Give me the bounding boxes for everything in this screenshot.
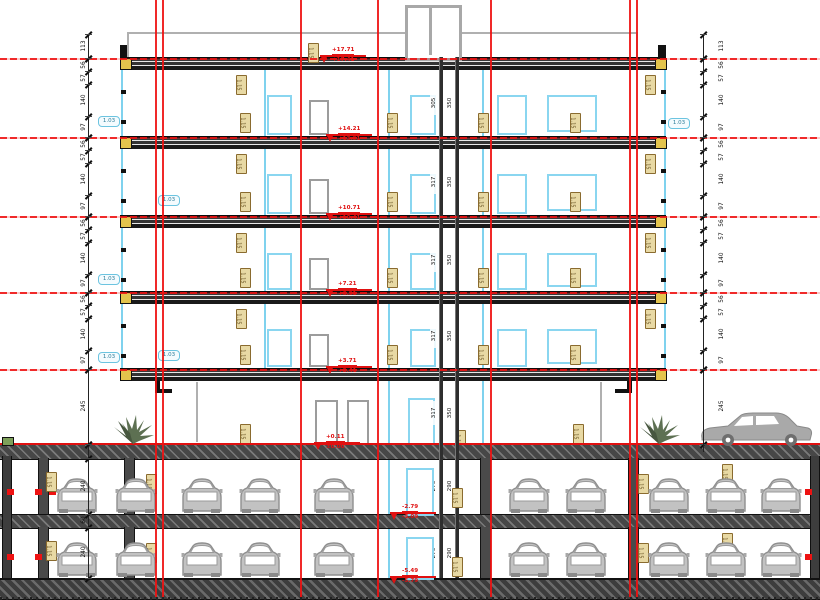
- level-marker-value-lower: +6.91: [338, 291, 357, 297]
- core-dim-a: 317: [430, 170, 438, 194]
- parked-car-b2: [757, 542, 805, 577]
- wall-dot: [121, 90, 126, 94]
- dim-value: 245: [718, 393, 726, 419]
- grid-line-horizontal-2: [0, 216, 820, 218]
- parked-car-glyph: [53, 542, 101, 577]
- dim-tick-bar: [700, 137, 707, 138]
- door-frame-left: [267, 95, 292, 135]
- wall-dot: [661, 354, 666, 358]
- level-marker-arrow: [326, 213, 334, 221]
- parked-car-b2: [310, 542, 358, 577]
- wall-tag: 1.15: [478, 192, 489, 212]
- level-marker-value-upper: -2.79: [402, 504, 418, 512]
- wall-tag-label: 1.15: [236, 313, 242, 324]
- wall-tag-label: 1.15: [570, 117, 576, 128]
- dim-value: 245: [80, 393, 88, 419]
- wall-tag-label: 1.15: [240, 117, 246, 128]
- dim-tick-bar: [700, 318, 707, 319]
- parked-car-glyph: [53, 478, 101, 513]
- level-marker-arrow: [390, 576, 398, 584]
- street-car-glyph: [698, 407, 814, 447]
- slab-end-block: [655, 369, 667, 381]
- level-marker-value-upper: +3.71: [338, 358, 357, 366]
- wall-tag: 1.15: [452, 488, 463, 508]
- wall-tag: 1.15: [570, 345, 581, 365]
- core-dim-b: 350: [446, 170, 454, 194]
- parked-car-b2: [53, 542, 101, 577]
- level-marker-value-lower: ±0.00: [326, 444, 345, 450]
- core-dim-a: 317: [430, 401, 438, 425]
- dim-tick-bar: [85, 458, 92, 459]
- door-outline: [309, 334, 329, 367]
- parked-car-b1: [112, 478, 160, 513]
- level-marker-value-lower: -3.09: [402, 514, 418, 520]
- parked-car-glyph: [562, 542, 610, 577]
- roof-parapet: [658, 45, 666, 58]
- dim-tick-bar: [700, 116, 707, 117]
- window-tag: 1.03: [98, 352, 120, 363]
- wall-tag: 1.15: [645, 233, 656, 253]
- slab-end-block: [655, 137, 667, 149]
- street-car: [698, 407, 814, 447]
- grid-line-vertical-1: [162, 0, 164, 597]
- slab-end-block: [655, 58, 667, 70]
- wall-tag: 1.15: [478, 113, 489, 133]
- wall-tag-label: 1.15: [46, 476, 52, 487]
- parked-car-glyph: [310, 542, 358, 577]
- core-wall-line: [439, 57, 443, 578]
- parked-car-b2: [178, 542, 226, 577]
- wall-tag: 1.15: [240, 192, 251, 212]
- dim-tick-bar: [700, 163, 707, 164]
- level-marker-arrow: [390, 512, 398, 520]
- wall-dot: [121, 278, 126, 282]
- wall-dot: [121, 248, 126, 252]
- wall-tag: 1.15: [570, 268, 581, 288]
- dim-value: 140: [80, 321, 88, 347]
- anchor-dot: [805, 489, 812, 495]
- wall-dot: [661, 90, 666, 94]
- wall-tag: 1.15: [387, 113, 398, 133]
- window-frame-mid: [497, 329, 527, 367]
- parked-car-b2: [562, 542, 610, 577]
- wall-tag-label: 1.15: [240, 428, 246, 439]
- parked-car-glyph: [702, 542, 750, 577]
- parked-car-b1: [702, 478, 750, 513]
- dim-value: 140: [80, 245, 88, 271]
- parked-car-glyph: [236, 478, 284, 513]
- dim-tick-bar: [700, 216, 707, 217]
- dim-tick-bar: [700, 305, 707, 306]
- parked-car-b1: [562, 478, 610, 513]
- wall-tag-label: 1.15: [645, 79, 651, 90]
- window-frame-mid: [497, 95, 527, 135]
- parked-car-b2: [236, 542, 284, 577]
- parked-car-b2: [702, 542, 750, 577]
- roof-parapet-line: [127, 32, 129, 57]
- wall-tag-label: 1.15: [645, 237, 651, 248]
- wall-tag-label: 1.15: [240, 272, 246, 283]
- parked-car-glyph: [757, 542, 805, 577]
- level-marker-arrow: [314, 442, 322, 450]
- door-outline: [309, 100, 329, 135]
- door-frame-left: [267, 329, 292, 367]
- wall-tag-label: 1.15: [387, 117, 393, 128]
- dim-value: 97: [718, 347, 726, 373]
- anchor-dot: [7, 489, 14, 495]
- core-dim-a: 317: [430, 324, 438, 348]
- planter-left: [112, 415, 154, 444]
- wall-tag: 1.15: [573, 424, 584, 444]
- parked-car-glyph: [645, 542, 693, 577]
- slab-end-block: [120, 369, 132, 381]
- curb-block: [2, 437, 14, 446]
- wall-tag-label: 1.15: [638, 478, 644, 489]
- wall-tag: 1.15: [645, 75, 656, 95]
- dim-tick-bar: [700, 229, 707, 230]
- level-marker-value-upper: +10.71: [338, 205, 360, 213]
- wall-tag: 1.15: [236, 154, 247, 174]
- parked-car-glyph: [178, 478, 226, 513]
- anchor-dot: [35, 554, 42, 560]
- wall-tag: 1.15: [387, 192, 398, 212]
- parked-car-glyph: [310, 478, 358, 513]
- dim-tick-bar: [700, 242, 707, 243]
- wall-tag: 1.15: [452, 557, 463, 577]
- ground-wall-line: [600, 382, 602, 442]
- window-frame-mid: [497, 174, 527, 214]
- dim-chain-parking: [88, 444, 89, 578]
- parked-car-glyph: [112, 478, 160, 513]
- window-tag: 1.03: [98, 116, 120, 127]
- dim-tick-bar: [700, 150, 707, 151]
- level-marker-arrow: [326, 289, 334, 297]
- wall-dot: [121, 120, 126, 124]
- slab-end-block: [120, 137, 132, 149]
- wall-dot: [661, 199, 666, 203]
- door-outline: [309, 258, 329, 290]
- grid-line-horizontal-1: [0, 137, 820, 139]
- wall-tag: 1.15: [240, 268, 251, 288]
- penthouse-door-outline: [405, 5, 462, 61]
- core-dim-b: 350: [446, 401, 454, 425]
- grid-line-vertical-0: [155, 0, 157, 597]
- slab-end-block: [655, 216, 667, 228]
- parked-car-glyph: [505, 542, 553, 577]
- wall-dot: [121, 169, 126, 173]
- dim-tick-bar: [700, 58, 707, 59]
- wall-tag-label: 1.15: [236, 79, 242, 90]
- dim-value: 140: [718, 321, 726, 347]
- dim-chain-right: [703, 34, 704, 444]
- level-marker-value-upper: -5.49: [402, 568, 418, 576]
- planter-right: [638, 415, 680, 444]
- dim-chain-left: [88, 34, 89, 444]
- level-marker-value-lower: -5.79: [402, 578, 418, 584]
- ground-door-outline: [347, 400, 369, 446]
- parked-car-glyph: [645, 478, 693, 513]
- wall-tag: 1.15: [240, 345, 251, 365]
- level-marker-arrow: [326, 366, 334, 374]
- anchor-dot: [35, 489, 42, 495]
- wall-tag-label: 1.15: [645, 313, 651, 324]
- level-marker-arrow: [320, 55, 328, 63]
- wall-tag-label: 1.15: [570, 196, 576, 207]
- wall-tag-label: 1.15: [387, 349, 393, 360]
- dim-value: 240: [80, 539, 88, 565]
- dim-value: 240: [80, 473, 88, 499]
- wall-tag: 1.15: [236, 75, 247, 95]
- door-outline: [309, 179, 329, 214]
- dim-tick-bar: [700, 274, 707, 275]
- parked-car-glyph: [562, 478, 610, 513]
- wall-tag: 1.15: [236, 309, 247, 329]
- parked-car-b1: [505, 478, 553, 513]
- level-marker-value-upper: +0.11: [326, 434, 345, 442]
- wall-dot: [121, 199, 126, 203]
- wall-dot: [121, 354, 126, 358]
- plant-glyph: [112, 415, 154, 444]
- wall-tag: 1.15: [308, 43, 319, 63]
- dim-tick-bar: [700, 195, 707, 196]
- penthouse-door-divider: [429, 8, 432, 55]
- wall-tag-label: 1.15: [46, 545, 52, 556]
- core-dim-b: 350: [446, 324, 454, 348]
- grid-line-horizontal-3: [0, 292, 820, 294]
- wall-tag: 1.15: [387, 268, 398, 288]
- wall-tag-label: 1.15: [570, 272, 576, 283]
- wall-tag-label: 1.15: [236, 158, 242, 169]
- dim-tick-bar: [85, 444, 92, 445]
- dim-tick-bar: [85, 578, 92, 579]
- wall-dot: [661, 169, 666, 173]
- grid-line-vertical-4: [490, 0, 492, 597]
- wall-tag-label: 1.15: [240, 349, 246, 360]
- parked-car-b1: [178, 478, 226, 513]
- wall-tag: 1.15: [645, 154, 656, 174]
- window-frame-mid: [497, 253, 527, 290]
- wall-tag-label: 1.15: [570, 349, 576, 360]
- wall-tag: 1.15: [240, 424, 251, 444]
- wall-tag-label: 1.15: [478, 272, 484, 283]
- level-marker-value-upper: +14.21: [338, 126, 360, 134]
- window-tag: 1.03: [668, 118, 690, 129]
- dim-chain-street: [703, 444, 704, 452]
- wall-tag: 1.15: [387, 345, 398, 365]
- podium-slab: [0, 444, 820, 460]
- dim-value: 60: [80, 507, 88, 533]
- slab-end-block: [655, 292, 667, 304]
- level-marker-value-lower: +17.41: [332, 57, 354, 63]
- wall-dot: [661, 248, 666, 252]
- wall-tag: 1.15: [240, 113, 251, 133]
- slab-end-block: [120, 58, 132, 70]
- wall-tag-label: 1.15: [478, 349, 484, 360]
- wall-tag-label: 1.15: [236, 237, 242, 248]
- wall-tag-label: 1.15: [308, 47, 314, 58]
- wall-dot: [661, 120, 666, 124]
- window-tag: 1.03: [98, 274, 120, 285]
- level-marker-value-upper: +7.21: [338, 281, 357, 289]
- parked-car-glyph: [236, 542, 284, 577]
- slab-end-block: [120, 216, 132, 228]
- grid-line-vertical-6: [636, 0, 638, 597]
- grid-line-vertical-5: [629, 0, 631, 597]
- building-section-drawing: 1.151.151.151.151.151.151.031.151.151.15…: [0, 0, 820, 600]
- wall-tag-label: 1.15: [478, 117, 484, 128]
- parked-car-glyph: [702, 478, 750, 513]
- wall-dot: [661, 324, 666, 328]
- core-dim-a: 305: [430, 91, 438, 115]
- dim-tick-bar: [700, 34, 707, 35]
- level-marker-value-lower: +13.91: [338, 136, 360, 142]
- parked-car-glyph: [757, 478, 805, 513]
- dim-tick-bar: [700, 71, 707, 72]
- grid-line-vertical-3: [377, 0, 379, 597]
- dim-tick-bar: [700, 369, 707, 370]
- wall-tag: 1.15: [570, 113, 581, 133]
- parked-car-b2: [645, 542, 693, 577]
- dim-tick-bar: [700, 292, 707, 293]
- parked-car-b1: [757, 478, 805, 513]
- core-dim-a: 317: [430, 248, 438, 272]
- wall-dot: [121, 324, 126, 328]
- wall-tag: 1.15: [478, 345, 489, 365]
- dim-value: 140: [80, 87, 88, 113]
- door-frame-left: [267, 174, 292, 214]
- wall-tag-label: 1.15: [638, 547, 644, 558]
- level-marker-value-lower: +10.41: [338, 215, 360, 221]
- ground-wall-line: [196, 382, 198, 442]
- wall-tag: 1.15: [645, 309, 656, 329]
- parked-car-b1: [645, 478, 693, 513]
- dim-value: 140: [80, 166, 88, 192]
- wall-tag-label: 1.15: [573, 428, 579, 439]
- wall-tag-label: 1.15: [452, 492, 458, 503]
- level-marker-value-upper: +17.71: [332, 47, 354, 55]
- parked-car-b1: [236, 478, 284, 513]
- wall-dot: [661, 278, 666, 282]
- dim-value: 140: [718, 87, 726, 113]
- parked-car-glyph: [505, 478, 553, 513]
- wall-tag-label: 1.15: [478, 196, 484, 207]
- core-dim-b: 350: [446, 248, 454, 272]
- anchor-dot: [7, 554, 14, 560]
- wall-tag-label: 1.15: [452, 561, 458, 572]
- parked-car-glyph: [178, 542, 226, 577]
- door-frame-left: [267, 253, 292, 290]
- level-marker-arrow: [326, 134, 334, 142]
- parked-car-glyph: [112, 542, 160, 577]
- dim-value: 140: [718, 245, 726, 271]
- level-marker-value-lower: +3.41: [338, 368, 357, 374]
- anchor-dot: [805, 554, 812, 560]
- grid-line-horizontal-4: [0, 369, 820, 371]
- wall-tag: 1.15: [478, 268, 489, 288]
- wall-tag: 1.15: [236, 233, 247, 253]
- grid-line-vertical-2: [300, 0, 302, 597]
- wall-tag: 1.15: [570, 192, 581, 212]
- core-dim-b: 350: [446, 91, 454, 115]
- wall-tag-label: 1.15: [645, 158, 651, 169]
- dim-tick-bar: [700, 84, 707, 85]
- parked-car-b2: [505, 542, 553, 577]
- wall-tag-label: 1.15: [387, 272, 393, 283]
- dim-tick-bar: [85, 369, 92, 370]
- grid-line-horizontal-0: [0, 58, 820, 60]
- parked-car-b1: [310, 478, 358, 513]
- wall-tag-label: 1.15: [387, 196, 393, 207]
- parked-car-b2: [112, 542, 160, 577]
- slab-end-block: [120, 292, 132, 304]
- dim-value: 140: [718, 166, 726, 192]
- parked-car-b1: [53, 478, 101, 513]
- dim-tick-bar: [700, 350, 707, 351]
- wall-tag-label: 1.15: [240, 196, 246, 207]
- plant-glyph: [638, 415, 680, 444]
- roof-parapet-line: [127, 32, 638, 34]
